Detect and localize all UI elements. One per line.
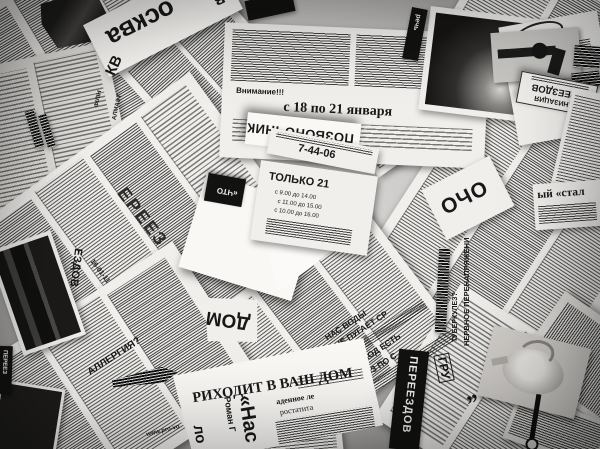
- text-column: [231, 29, 351, 86]
- headline-lo: ло: [191, 424, 209, 445]
- inverted-ad-block: [573, 45, 600, 69]
- headline-rech: речь: [412, 14, 422, 31]
- newsprint-scrap-dom: ДОМ: [199, 292, 263, 348]
- headline-chto: «ЧТО: [216, 186, 238, 198]
- headline-vash-dom: РИХОДИТ В ВАШ ДОМ: [192, 366, 354, 406]
- headline-stal: ый «стал: [537, 187, 585, 202]
- text-column: [538, 202, 597, 224]
- revolver-cylinder: [531, 42, 548, 59]
- headline-attention: Внимание!!!: [236, 87, 284, 97]
- text-column: [265, 218, 352, 246]
- photo-fragment-ink: [244, 0, 295, 21]
- headline-pereezdov: ПЕРЕЕЗДОВ: [400, 356, 419, 434]
- newsprint-scrap-tolko: ТОЛЬКО 21 с 9.00 до 14.00 с 11.00 до 15.…: [250, 160, 378, 256]
- inverted-banner-pereez: ПЕРЕЕЗ: [0, 346, 13, 394]
- headline-dom: ДОМ: [205, 308, 251, 333]
- headline-pereez-left: ПЕРЕЕЗ: [1, 350, 8, 374]
- headline-moskva-tail: в: [212, 0, 229, 11]
- headline-nas: «Нас: [235, 394, 262, 444]
- newsprint-scrap-stal: ый «стал: [532, 180, 600, 231]
- headline-ocho: ОЧО: [438, 177, 492, 219]
- newspaper-collage: осква в КВ ФІЛІН АЛМАЗ Г Внимание!!! с 1…: [0, 0, 600, 449]
- headline-tolko: ТОЛЬКО 21: [268, 171, 330, 190]
